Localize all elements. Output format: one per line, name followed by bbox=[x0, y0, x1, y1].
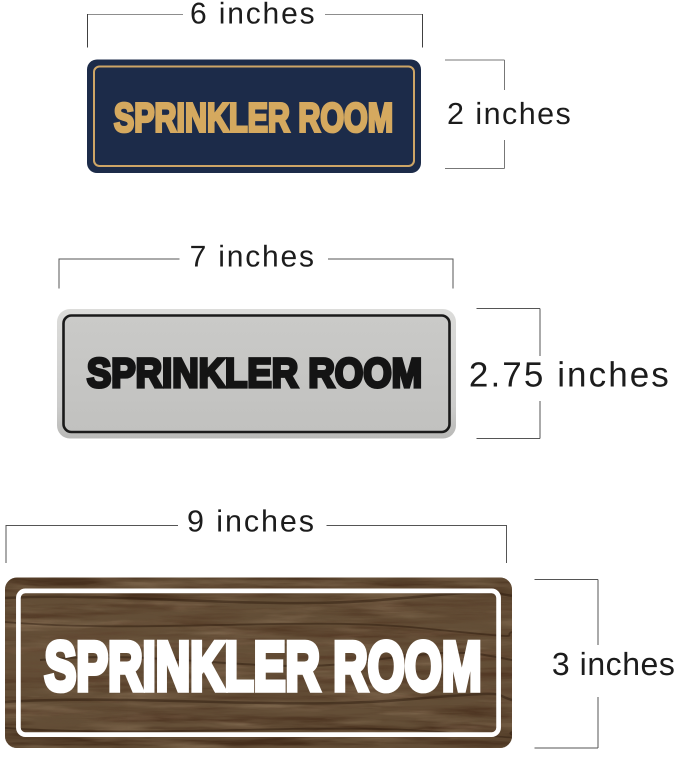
svg-text:3 inches: 3 inches bbox=[552, 646, 675, 682]
svg-text:SPRINKLER ROOM: SPRINKLER ROOM bbox=[114, 95, 393, 141]
svg-text:SPRINKLER ROOM: SPRINKLER ROOM bbox=[87, 350, 422, 396]
svg-text:2 inches: 2 inches bbox=[447, 97, 571, 131]
svg-text:SPRINKLER ROOM: SPRINKLER ROOM bbox=[44, 628, 481, 705]
svg-text:2.75 inches: 2.75 inches bbox=[469, 355, 669, 394]
svg-text:7 inches: 7 inches bbox=[190, 240, 314, 273]
svg-text:9 inches: 9 inches bbox=[187, 504, 314, 538]
svg-text:6 inches: 6 inches bbox=[190, 0, 315, 30]
